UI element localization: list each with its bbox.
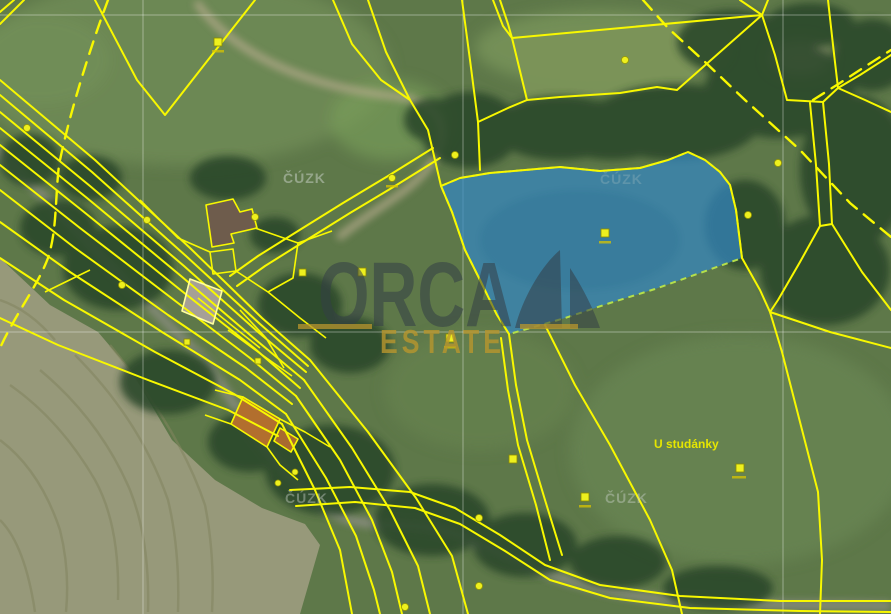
place-name-label: U studánky bbox=[654, 437, 719, 451]
cuzk-watermark-label: ČÚZK bbox=[605, 489, 648, 506]
map-viewport[interactable]: ČÚZK ČÚZK ČÚZK ČÚZK U studánky ORCA ESTA… bbox=[0, 0, 891, 614]
brand-watermark-text-bottom: ESTATE bbox=[380, 323, 505, 360]
cuzk-watermark-label: ČÚZK bbox=[600, 170, 643, 187]
cuzk-watermark-label: ČÚZK bbox=[285, 489, 328, 506]
cuzk-watermark-label: ČÚZK bbox=[283, 169, 326, 186]
watermark-rule-right bbox=[520, 324, 578, 329]
watermark-rule-left bbox=[298, 324, 372, 329]
cadastral-map-canvas[interactable]: ČÚZK ČÚZK ČÚZK ČÚZK U studánky ORCA ESTA… bbox=[0, 0, 891, 614]
